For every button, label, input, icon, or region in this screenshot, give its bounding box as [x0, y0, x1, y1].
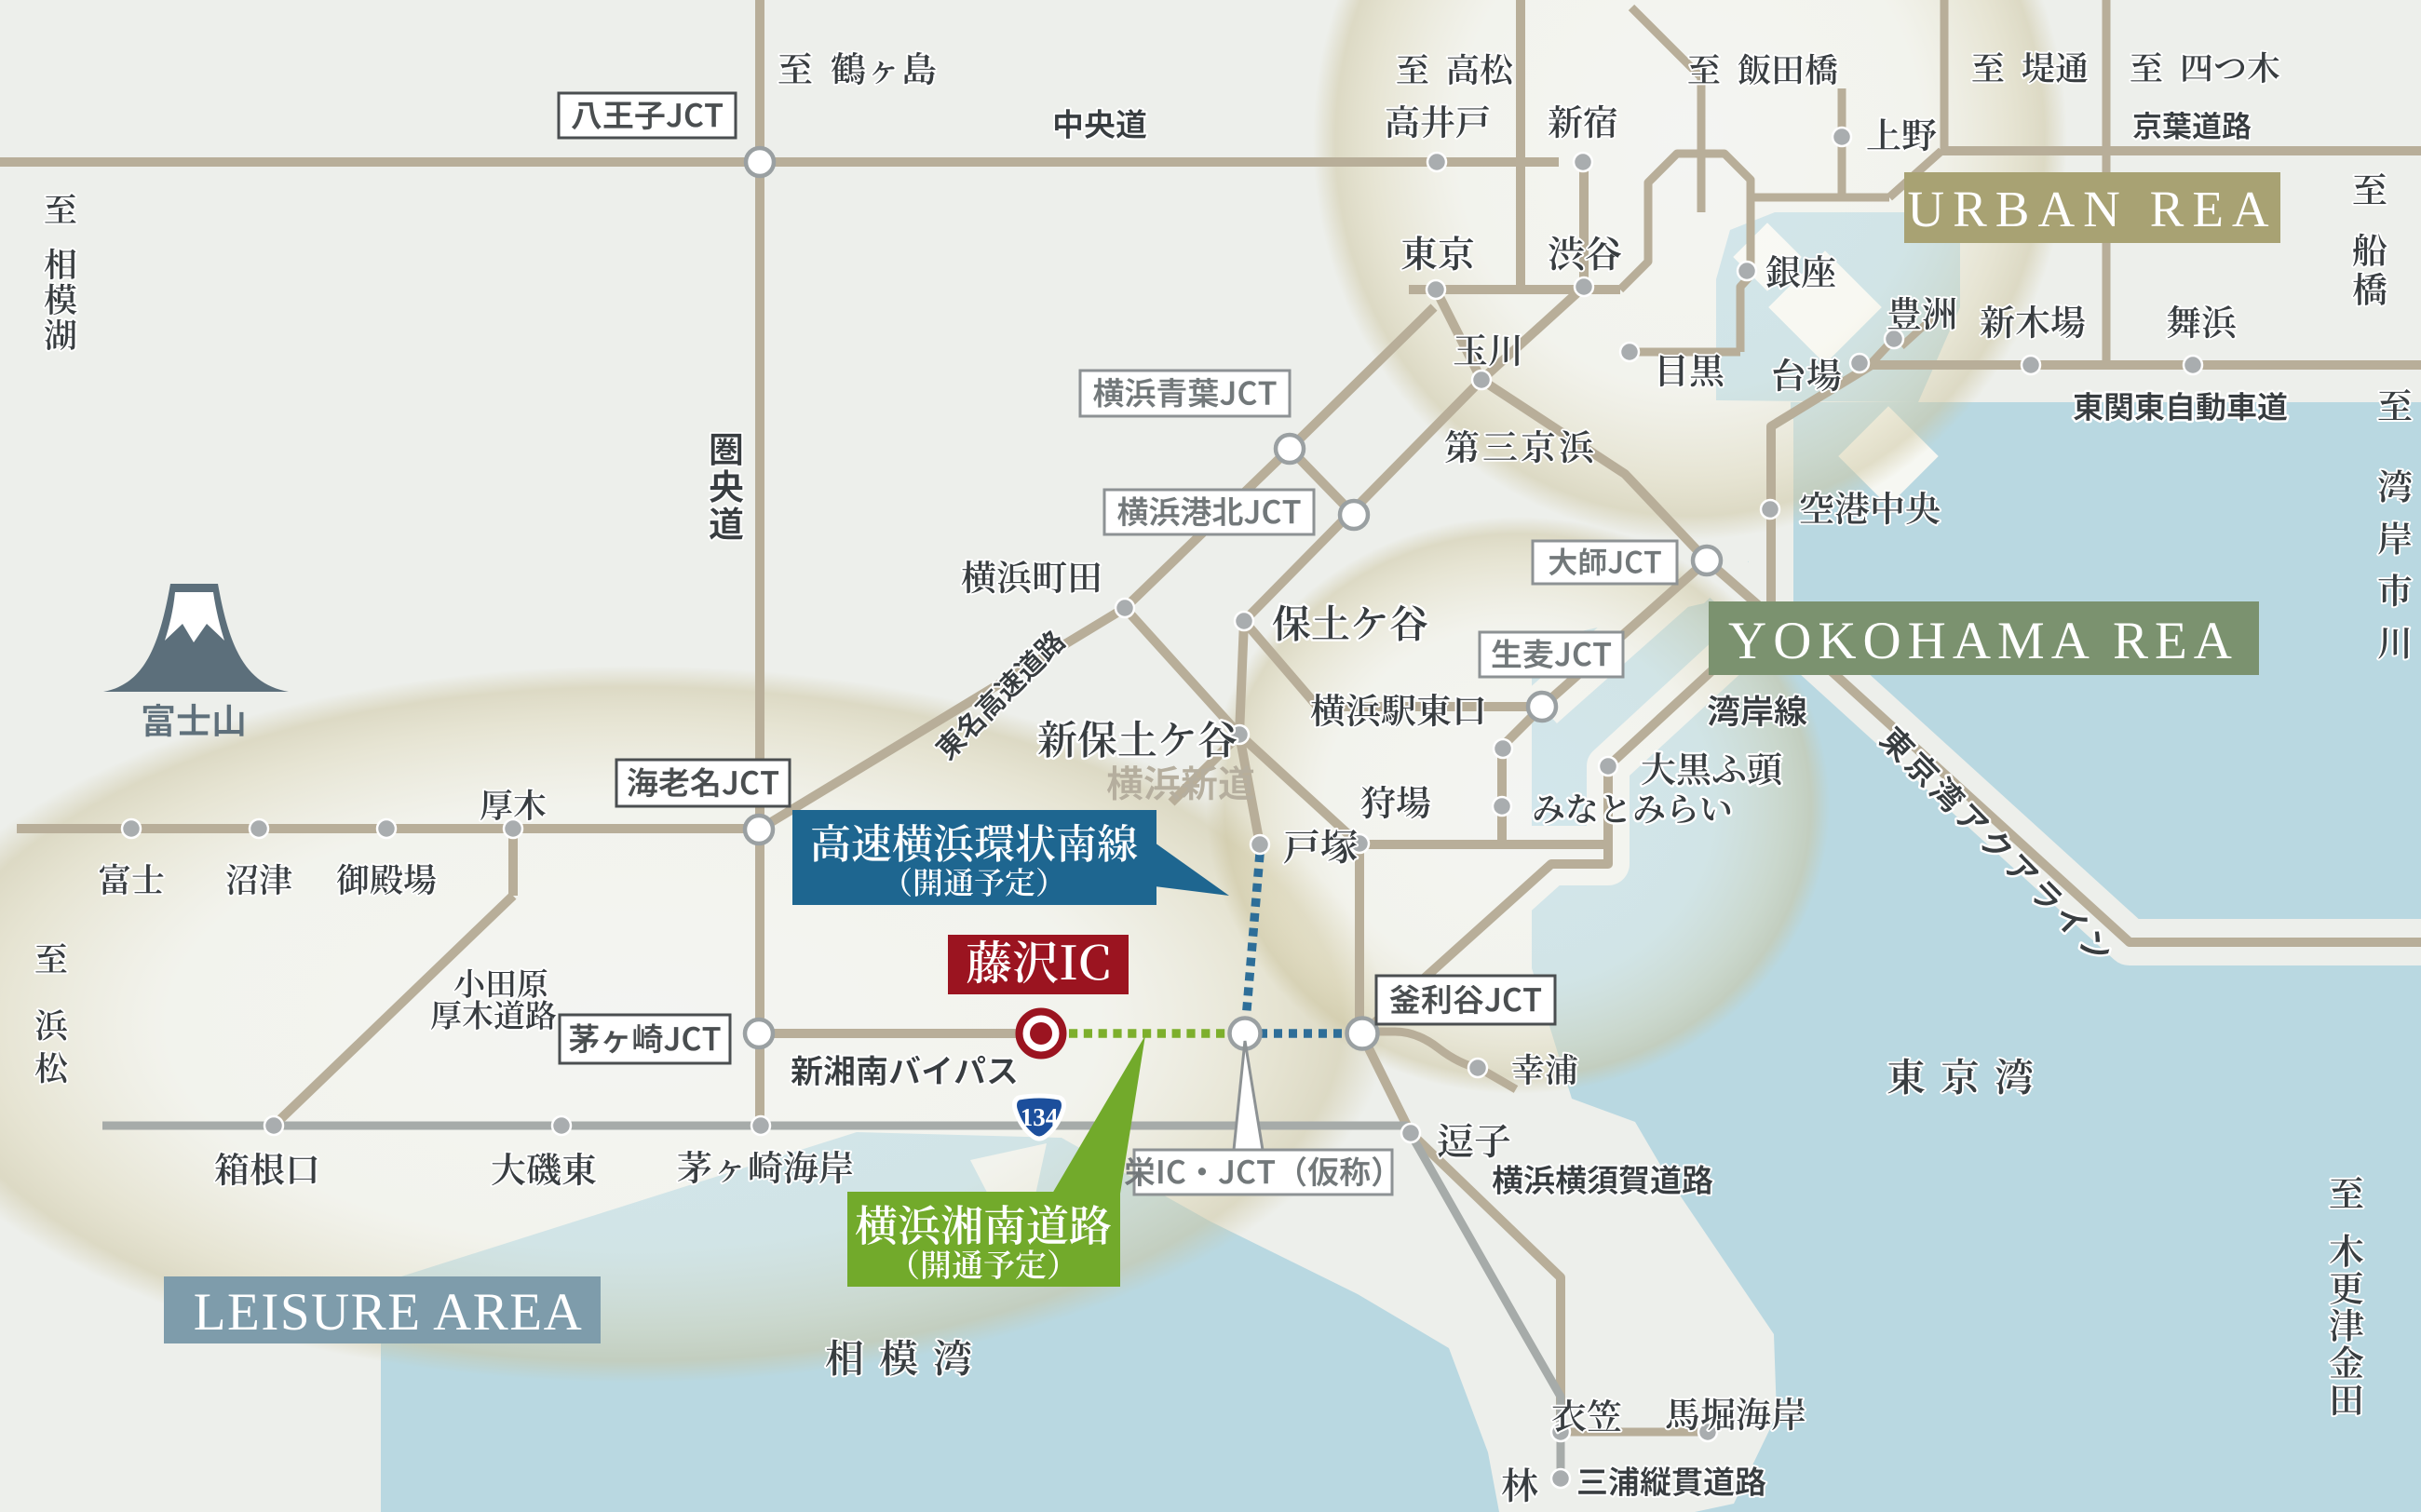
svg-text:134: 134: [1021, 1103, 1059, 1131]
svg-text:LEISURE AREA: LEISURE AREA: [194, 1283, 584, 1342]
svg-text:URBAN REA: URBAN REA: [1907, 181, 2277, 237]
svg-text:YOKOHAMA REA: YOKOHAMA REA: [1728, 612, 2238, 670]
